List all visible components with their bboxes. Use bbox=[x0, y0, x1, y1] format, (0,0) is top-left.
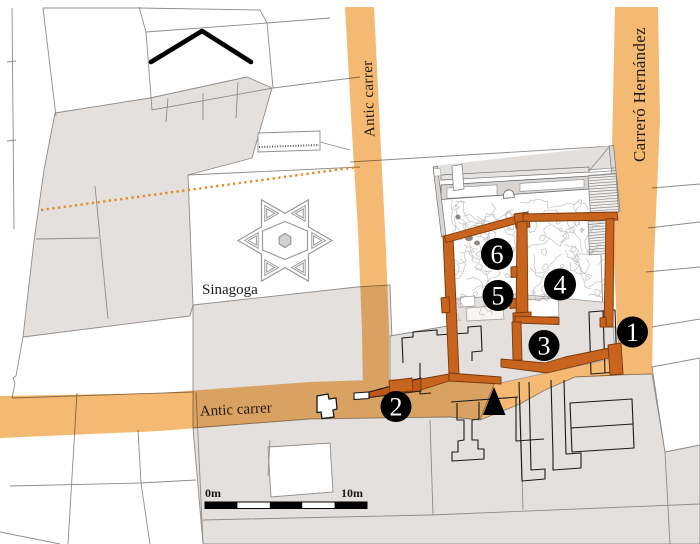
svg-text:4: 4 bbox=[554, 271, 567, 300]
svg-text:2: 2 bbox=[390, 393, 403, 422]
svg-text:1: 1 bbox=[626, 318, 639, 347]
svg-text:3: 3 bbox=[538, 332, 551, 361]
svg-text:Antic carrer: Antic carrer bbox=[360, 60, 379, 137]
svg-text:5: 5 bbox=[492, 282, 505, 311]
svg-text:0m: 0m bbox=[205, 486, 221, 500]
svg-text:6: 6 bbox=[491, 240, 504, 269]
svg-text:10m: 10m bbox=[341, 486, 363, 500]
svg-text:Sinagoga: Sinagoga bbox=[202, 282, 258, 298]
svg-text:Carreró Hernández: Carreró Hernández bbox=[630, 27, 649, 162]
